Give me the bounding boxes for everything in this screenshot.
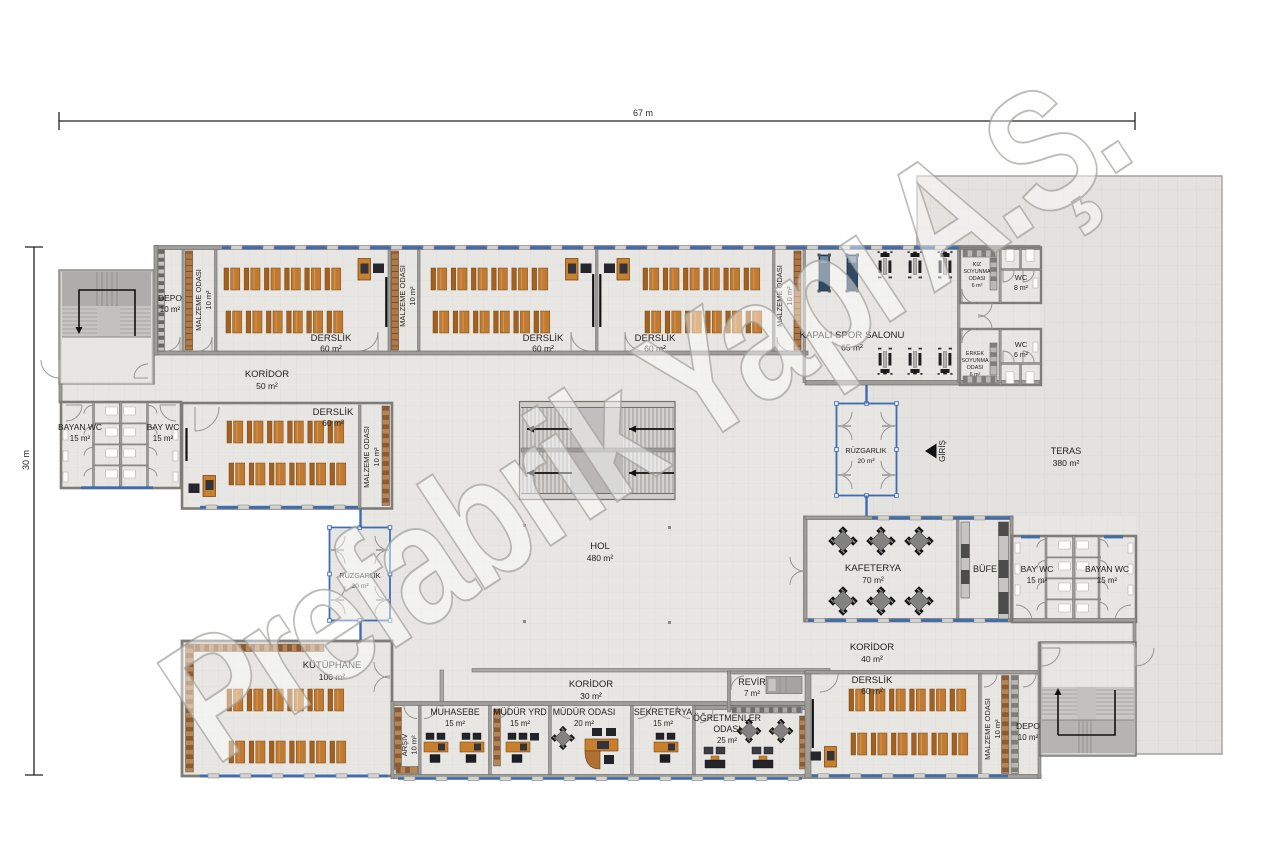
- svg-text:MUHASEBE: MUHASEBE: [430, 707, 480, 717]
- svg-text:ODASI: ODASI: [967, 365, 984, 371]
- svg-text:15 m²: 15 m²: [153, 434, 174, 443]
- svg-text:8 m²: 8 m²: [1014, 285, 1029, 292]
- svg-text:DEPO: DEPO: [1016, 721, 1040, 731]
- svg-text:DERSLİK: DERSLİK: [311, 333, 352, 344]
- svg-text:30 m: 30 m: [21, 450, 31, 470]
- svg-text:DERSLİK: DERSLİK: [313, 407, 354, 418]
- svg-text:KORİDOR: KORİDOR: [569, 679, 613, 690]
- svg-text:BAY WC: BAY WC: [1021, 564, 1054, 574]
- svg-text:15 m²: 15 m²: [510, 719, 530, 728]
- svg-text:DERSLİK: DERSLİK: [523, 333, 564, 344]
- svg-text:10 m²: 10 m²: [1018, 733, 1039, 742]
- svg-text:380 m²: 380 m²: [1053, 458, 1080, 468]
- svg-text:MALZEME ODASI: MALZEME ODASI: [983, 698, 992, 760]
- svg-text:7 m²: 7 m²: [744, 689, 760, 698]
- svg-text:KORİDOR: KORİDOR: [245, 369, 289, 380]
- svg-text:KAFETERYA: KAFETERYA: [845, 563, 902, 574]
- svg-text:DERSLİK: DERSLİK: [852, 675, 893, 686]
- svg-text:MALZEME ODASI: MALZEME ODASI: [194, 269, 203, 331]
- svg-text:MÜDÜR YRD: MÜDÜR YRD: [493, 707, 547, 717]
- svg-text:ÖĞRETMENLER: ÖĞRETMENLER: [693, 713, 761, 723]
- svg-text:60 m²: 60 m²: [532, 344, 554, 354]
- svg-text:BAYAN WC: BAYAN WC: [58, 422, 102, 432]
- svg-text:MALZEME ODASI: MALZEME ODASI: [398, 265, 407, 327]
- svg-text:10 m²: 10 m²: [372, 447, 381, 467]
- svg-text:MALZEME ODASI: MALZEME ODASI: [362, 426, 371, 488]
- svg-text:KORİDOR: KORİDOR: [850, 642, 894, 653]
- svg-text:TERAS: TERAS: [1051, 446, 1082, 456]
- svg-text:SOYUNMA: SOYUNMA: [961, 358, 989, 364]
- svg-text:15 m²: 15 m²: [653, 719, 673, 728]
- svg-text:10 m²: 10 m²: [408, 286, 417, 306]
- svg-text:60 m²: 60 m²: [320, 344, 342, 354]
- svg-text:WC: WC: [1015, 340, 1028, 349]
- svg-text:BAY WC: BAY WC: [147, 422, 180, 432]
- svg-text:DEPO: DEPO: [158, 293, 182, 303]
- svg-text:30 m²: 30 m²: [580, 691, 602, 701]
- svg-text:ERKEK: ERKEK: [966, 351, 985, 357]
- svg-text:6 m²: 6 m²: [970, 372, 981, 378]
- svg-text:15 m²: 15 m²: [1027, 576, 1048, 585]
- svg-text:SEKRETERYA: SEKRETERYA: [634, 707, 692, 717]
- svg-text:REVİR: REVİR: [738, 677, 766, 687]
- svg-text:50 m²: 50 m²: [256, 381, 278, 391]
- svg-text:10 m²: 10 m²: [204, 290, 213, 310]
- svg-text:10 m²: 10 m²: [410, 735, 419, 755]
- svg-text:ODASI: ODASI: [713, 724, 740, 734]
- svg-text:MÜDÜR ODASI: MÜDÜR ODASI: [553, 707, 616, 717]
- svg-text:ARŞİV: ARŞİV: [400, 734, 409, 757]
- svg-text:20 m²: 20 m²: [574, 719, 594, 728]
- svg-text:10 m²: 10 m²: [160, 305, 181, 314]
- svg-text:60 m²: 60 m²: [322, 418, 344, 428]
- svg-text:GİRİŞ: GİRİŞ: [938, 440, 947, 462]
- svg-text:10 m²: 10 m²: [993, 719, 1002, 739]
- svg-text:40 m²: 40 m²: [861, 654, 883, 664]
- svg-text:15 m²: 15 m²: [70, 434, 91, 443]
- svg-text:67 m: 67 m: [633, 108, 653, 118]
- svg-text:25 m²: 25 m²: [717, 736, 737, 745]
- svg-text:RÜZGARLIK: RÜZGARLIK: [845, 446, 886, 455]
- svg-text:BÜFE: BÜFE: [973, 564, 997, 574]
- svg-text:6 m²: 6 m²: [1014, 352, 1029, 359]
- svg-text:20 m²: 20 m²: [857, 458, 875, 465]
- svg-text:15 m²: 15 m²: [1097, 576, 1118, 585]
- svg-text:BAYAN WC: BAYAN WC: [1085, 564, 1129, 574]
- svg-text:60 m²: 60 m²: [861, 686, 883, 696]
- svg-text:70 m²: 70 m²: [862, 575, 884, 585]
- svg-text:15 m²: 15 m²: [445, 719, 465, 728]
